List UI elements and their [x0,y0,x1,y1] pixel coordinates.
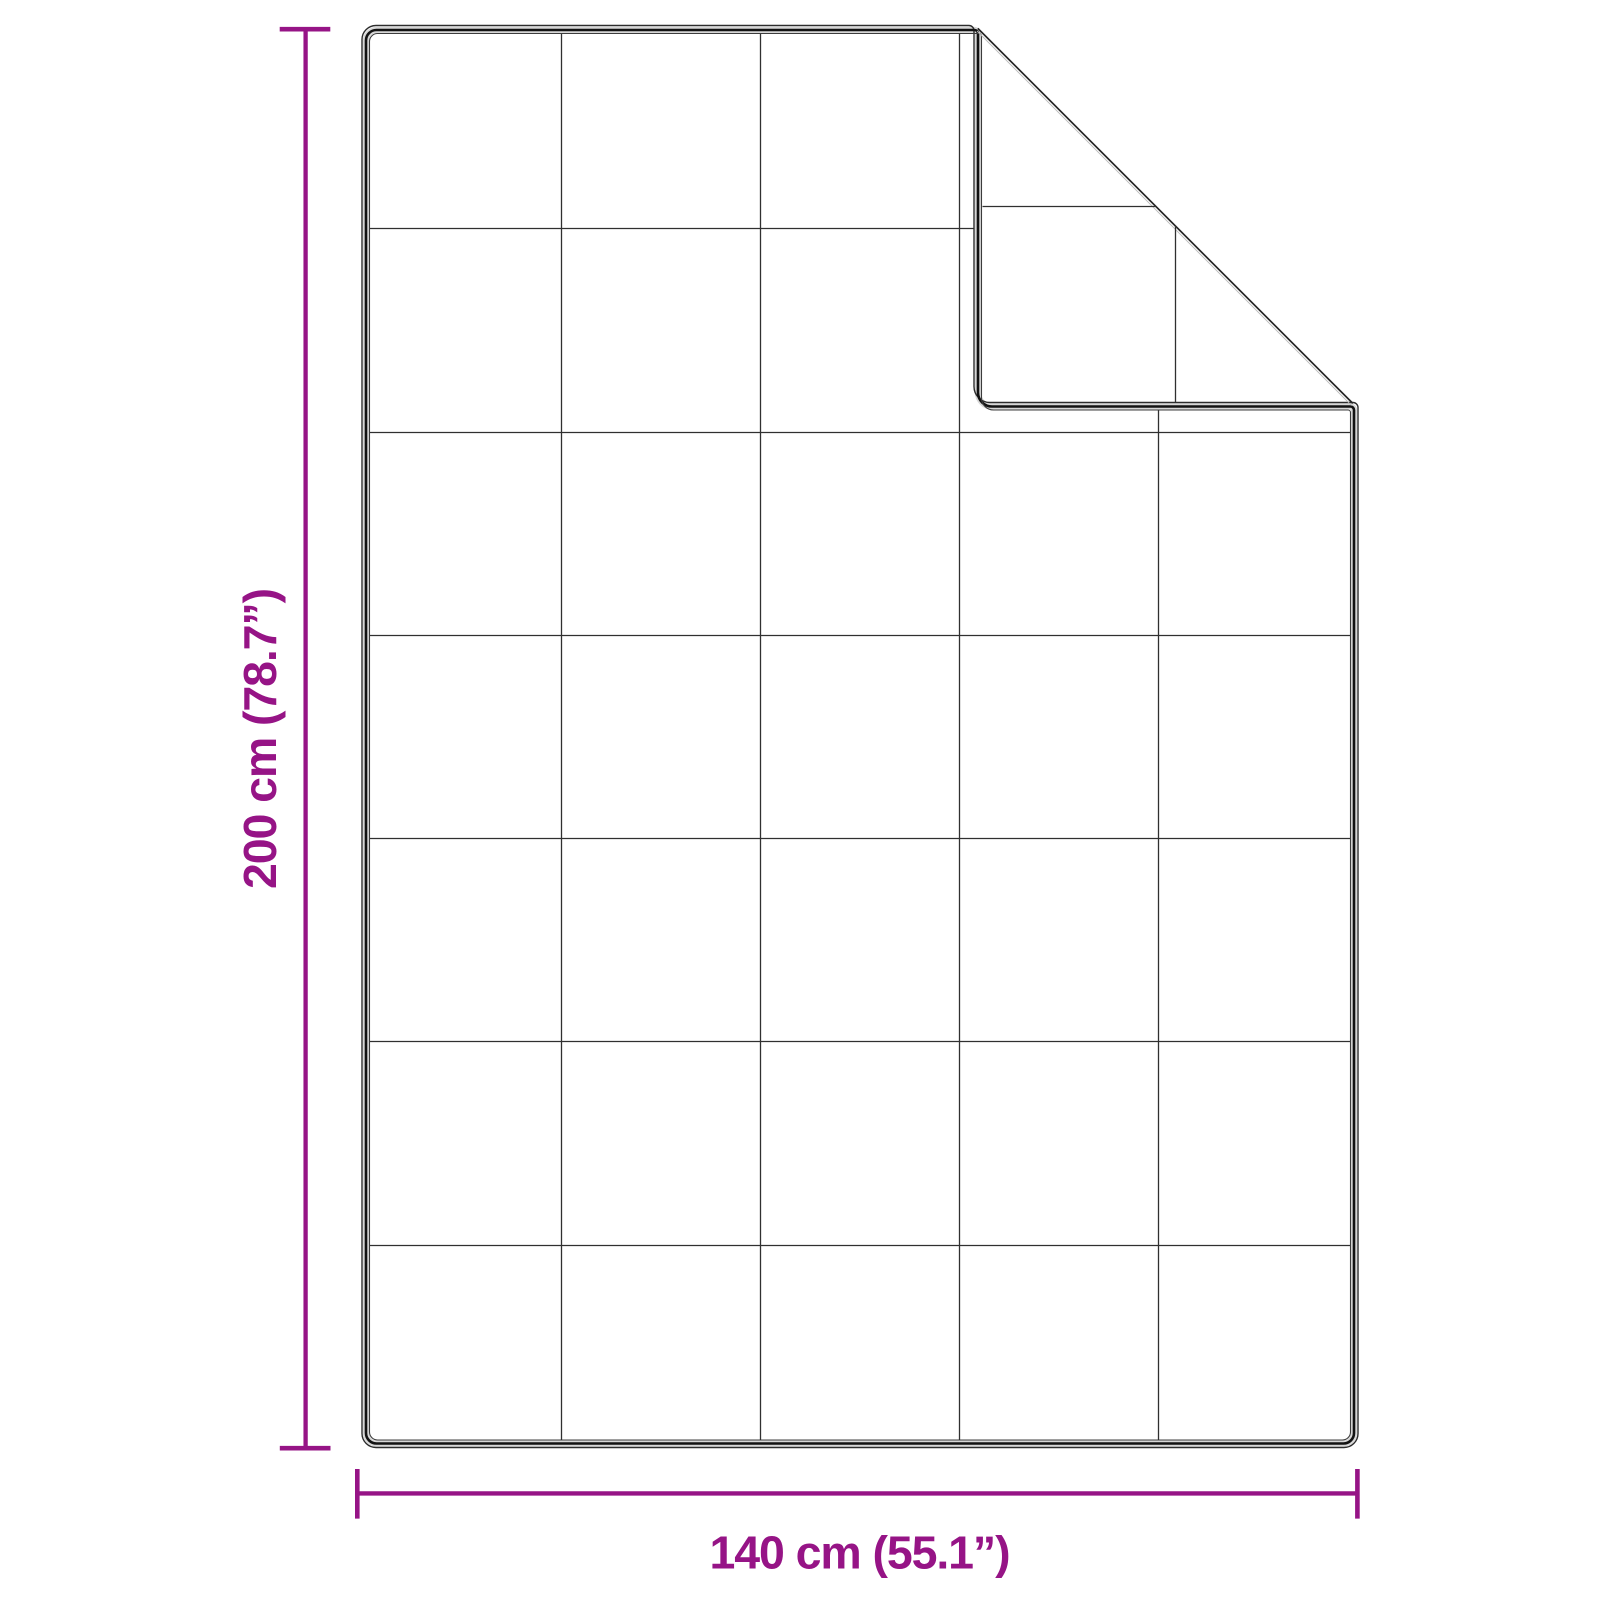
svg-text:200 cm (78.7”): 200 cm (78.7”) [234,589,286,889]
svg-text:140 cm (55.1”): 140 cm (55.1”) [710,1527,1010,1579]
